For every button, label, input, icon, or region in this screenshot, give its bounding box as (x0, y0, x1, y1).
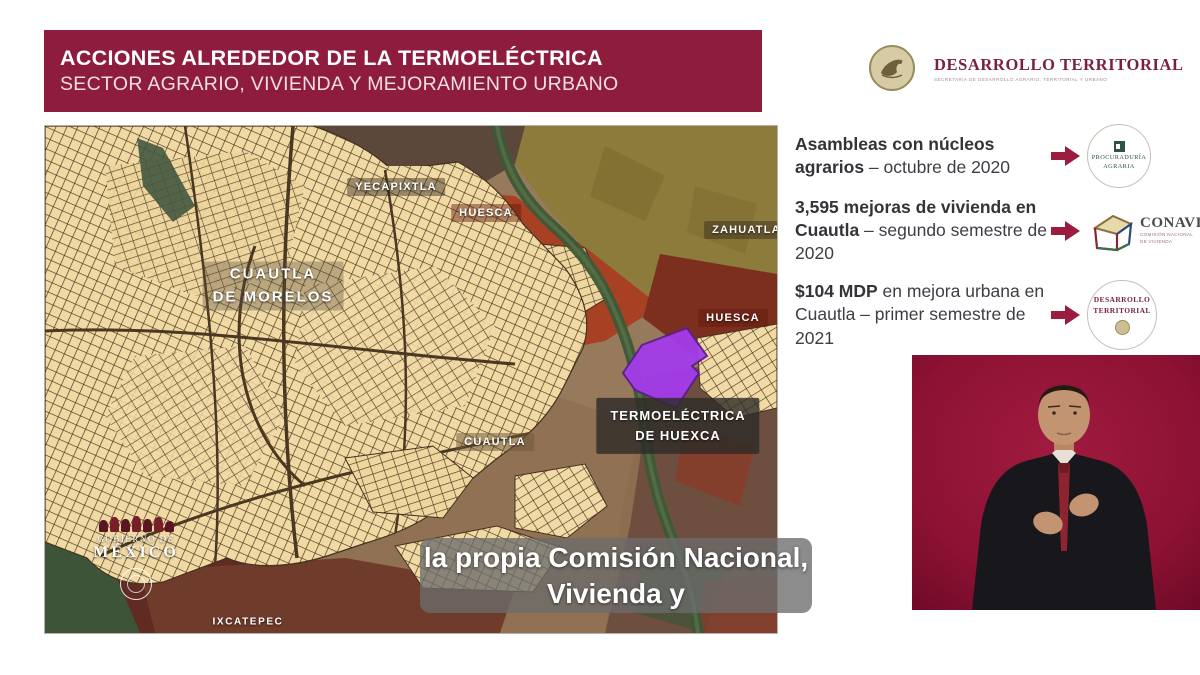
map-label-cuautla: CUAUTLA (456, 433, 534, 451)
sign-interpreter-video (912, 355, 1200, 610)
info-item-asambleas: Asambleas con núcleos agrarios – octubre… (795, 124, 1151, 188)
gold-seal-icon (1115, 320, 1130, 335)
map-label-ixcatepec: IXCATEPEC (205, 614, 292, 631)
gobierno-seal-icon (120, 568, 152, 600)
arrow-icon (1051, 145, 1081, 167)
header-banner: ACCIONES ALREDEDOR DE LA TERMOELÉCTRICA … (44, 30, 762, 112)
page-title: ACCIONES ALREDEDOR DE LA TERMOELÉCTRICA (60, 45, 746, 72)
info-text: Asambleas con núcleos agrarios – octubre… (795, 133, 1047, 179)
brand-tagline: SECRETARÍA DE DESARROLLO AGRARIO, TERRIT… (934, 77, 1184, 82)
hidalgo-figures-icon (75, 516, 197, 532)
info-item-vivienda: 3,595 mejoras de vivienda en Cuautla – s… (795, 196, 1200, 265)
info-text: $104 MDP en mejora urbana en Cuautla – p… (795, 280, 1047, 349)
map-label-termoelectrica: TERMOELÉCTRICA DE HUEXCA (596, 398, 759, 454)
gobierno-de-mexico-logo: GOBIERNO DE MÉXICO (75, 516, 197, 600)
map-label-yecapixtla: YECAPIXTLA (347, 178, 445, 196)
map-label-zahuatlan: ZAHUATLAN (704, 221, 778, 239)
info-item-mejora-urbana: $104 MDP en mejora urbana en Cuautla – p… (795, 280, 1157, 350)
caption-line2: Vivienda y (420, 576, 812, 612)
procuraduria-agraria-logo: PROCURADURÍAAGRARIA (1087, 124, 1151, 188)
interpreter-graphic (912, 355, 1200, 610)
mexico-eagle-seal-icon (868, 44, 916, 92)
brand-name: DESARROLLO TERRITORIAL (934, 55, 1184, 75)
map-label-huesca-east: HUESCA (698, 309, 768, 327)
arrow-icon (1051, 304, 1081, 326)
info-text: 3,595 mejoras de vivienda en Cuautla – s… (795, 196, 1047, 265)
conavi-house-icon (1087, 210, 1135, 252)
slide: ACCIONES ALREDEDOR DE LA TERMOELÉCTRICA … (0, 0, 1200, 675)
arrow-icon (1051, 220, 1081, 242)
map-label-cuautla-de-morelos: CUAUTLA DE MORELOS (203, 262, 344, 311)
conavi-logo: CONAVI COMISIÓN NACIONALDE VIVIENDA (1087, 210, 1200, 252)
procuraduria-icon (1114, 141, 1125, 152)
desarrollo-territorial-logo: DESARROLLOTERRITORIAL (1087, 280, 1157, 350)
caption-line1: la propia Comisión Nacional, (420, 540, 812, 576)
map-label-huesca-north: HUESCA (451, 204, 521, 222)
brand-logo: DESARROLLO TERRITORIAL SECRETARÍA DE DES… (868, 40, 1168, 96)
page-subtitle: SECTOR AGRARIO, VIVIENDA Y MEJORAMIENTO … (60, 72, 746, 96)
caption-overlay: la propia Comisión Nacional, Vivienda y (420, 538, 812, 613)
